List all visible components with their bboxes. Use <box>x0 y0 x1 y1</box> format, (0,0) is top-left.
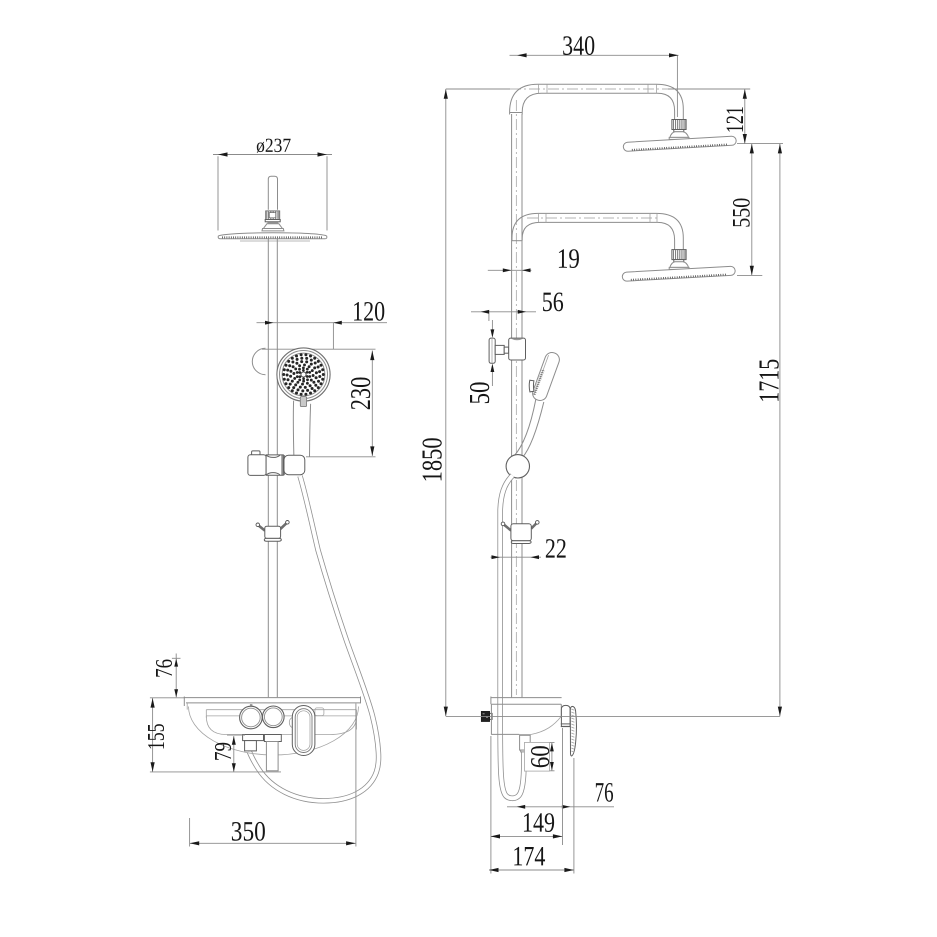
svg-text:121: 121 <box>722 106 749 133</box>
svg-text:19: 19 <box>557 244 580 275</box>
svg-text:149: 149 <box>522 808 555 839</box>
svg-text:22: 22 <box>545 534 567 565</box>
svg-text:550: 550 <box>729 198 756 228</box>
svg-text:56: 56 <box>542 287 564 318</box>
svg-text:60: 60 <box>525 745 555 768</box>
svg-text:350: 350 <box>231 816 266 847</box>
svg-text:ø237: ø237 <box>256 135 291 157</box>
svg-text:174: 174 <box>512 841 545 872</box>
svg-text:76: 76 <box>152 659 178 678</box>
svg-text:79: 79 <box>211 742 237 761</box>
svg-text:155: 155 <box>144 723 170 750</box>
svg-text:1850: 1850 <box>418 437 449 482</box>
svg-text:340: 340 <box>562 31 595 62</box>
svg-text:120: 120 <box>352 296 385 327</box>
svg-text:76: 76 <box>595 777 614 808</box>
svg-text:230: 230 <box>346 377 377 411</box>
svg-text:1715: 1715 <box>754 359 785 403</box>
svg-text:50: 50 <box>465 382 496 405</box>
